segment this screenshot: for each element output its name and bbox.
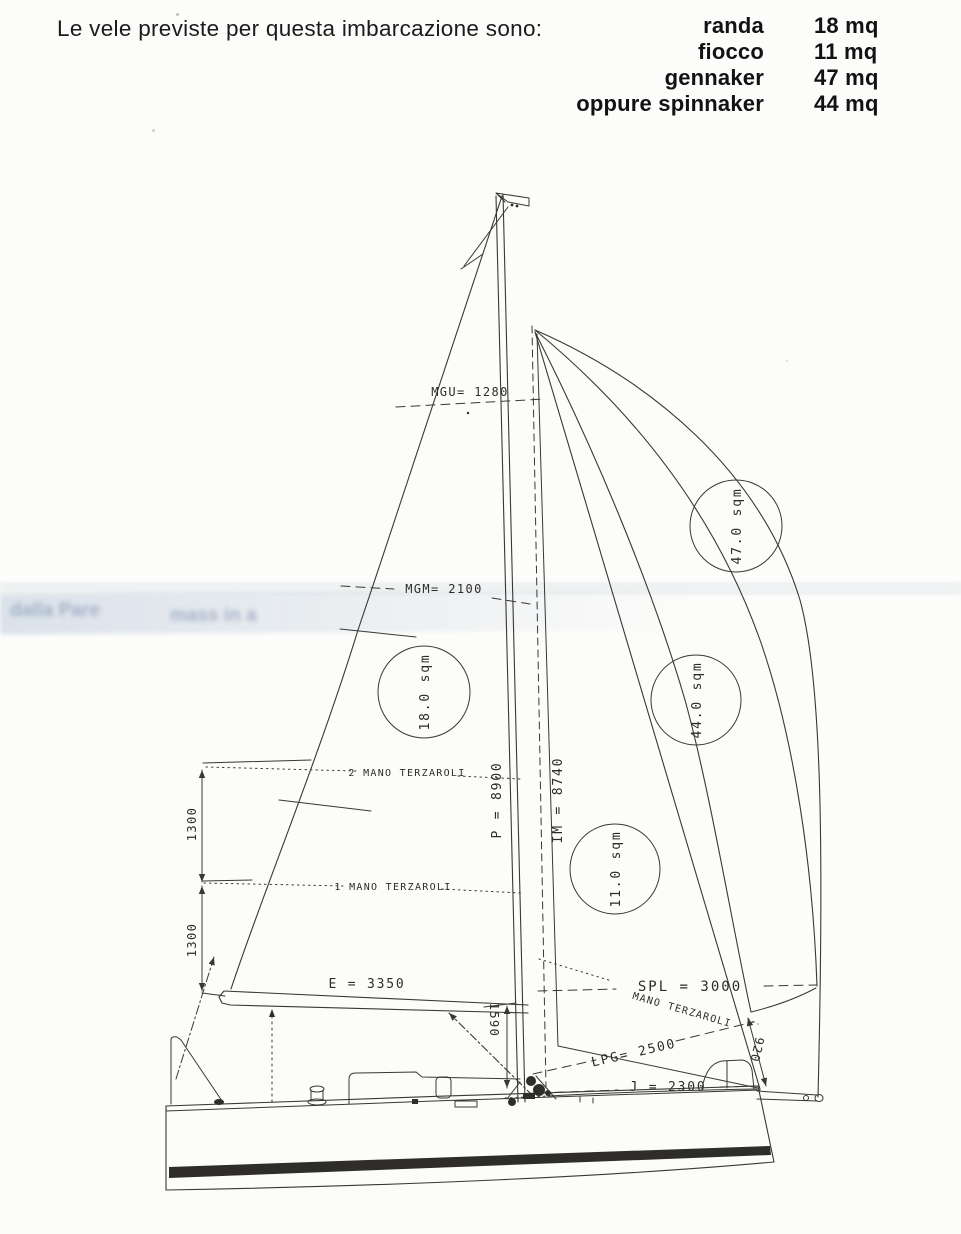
mano-terzaroli-label: MANO TERZAROLI <box>631 991 733 1030</box>
masthead-fitting <box>516 205 519 208</box>
bowsprit <box>757 1091 823 1102</box>
spl-label: SPL = 3000 <box>638 979 742 995</box>
mainsail-head-line <box>464 207 508 266</box>
forestay <box>535 332 760 1089</box>
masthead-fitting <box>511 204 514 207</box>
dim-1300-label: 1300 <box>185 807 199 842</box>
winch <box>308 1086 326 1105</box>
spl-line <box>538 989 616 991</box>
dim-920-label: 920 <box>747 1036 766 1064</box>
scanned-sail-plan-page: Le vele previste per questa imbarcazione… <box>0 0 961 1234</box>
flag-staff-tip <box>269 1009 275 1017</box>
scan-dot <box>467 412 469 414</box>
reef2-label: 2 MANO TERZAROLI <box>348 768 465 779</box>
reef2-extension <box>203 760 311 763</box>
dim-1300-label: 1300 <box>185 923 199 958</box>
mgu-line <box>396 399 545 407</box>
gennaker-foot <box>751 988 816 1012</box>
mainsail-area-label: 18.0 sqm <box>418 653 433 730</box>
batten-line <box>340 629 416 637</box>
lpg-label: LPG= 2500 <box>590 1036 678 1070</box>
mast <box>503 194 525 1102</box>
jib-leech <box>537 334 558 1046</box>
companionway <box>436 1077 451 1098</box>
boom <box>219 991 528 1013</box>
spl-line <box>764 985 817 986</box>
spinnaker-area-label: 44.0 sqm <box>690 661 705 738</box>
reef1-line <box>204 883 344 886</box>
spinnaker-luff <box>535 330 817 986</box>
stern-pulpit-base <box>214 1099 224 1105</box>
im-line <box>532 326 546 1088</box>
mast-base-hardware <box>507 1076 556 1106</box>
mgm-line <box>341 586 394 589</box>
dim-1590-label: 1590 <box>487 1003 501 1038</box>
sail-plan-drawing: MGU= 1280 MGM= 2100 2 MANO TERZAROLI 1 M… <box>0 0 961 1234</box>
reef1-label: 1 MANO TERZAROLI <box>334 882 451 893</box>
lpg-line <box>533 1060 596 1074</box>
im-label: IM = 8740 <box>551 757 566 844</box>
reef1-extension <box>203 880 252 881</box>
mgm-label: MGM= 2100 <box>405 582 483 596</box>
reef1-line <box>442 889 521 893</box>
e-label: E = 3350 <box>328 977 405 992</box>
mano-terzaroli-line <box>539 959 612 981</box>
deck-sheer <box>166 1086 758 1106</box>
deck-cleat <box>455 1101 477 1107</box>
reef2-line <box>206 767 356 771</box>
mast <box>496 196 518 1102</box>
p-label: P = 8900 <box>490 761 505 838</box>
waterline-stripe <box>169 1146 771 1178</box>
batten-line <box>461 254 483 269</box>
jib-area-label: 11.0 sqm <box>609 830 624 907</box>
bow-pulpit <box>702 1060 754 1089</box>
gennaker-area-label: 47.0 sqm <box>730 487 745 564</box>
deck-fitting <box>412 1099 418 1104</box>
batten-line <box>279 800 371 811</box>
stanchion-tick <box>580 1097 593 1103</box>
spinnaker-leech <box>535 332 751 1012</box>
mgu-label: MGU= 1280 <box>431 385 509 399</box>
mgm-line <box>492 598 530 604</box>
